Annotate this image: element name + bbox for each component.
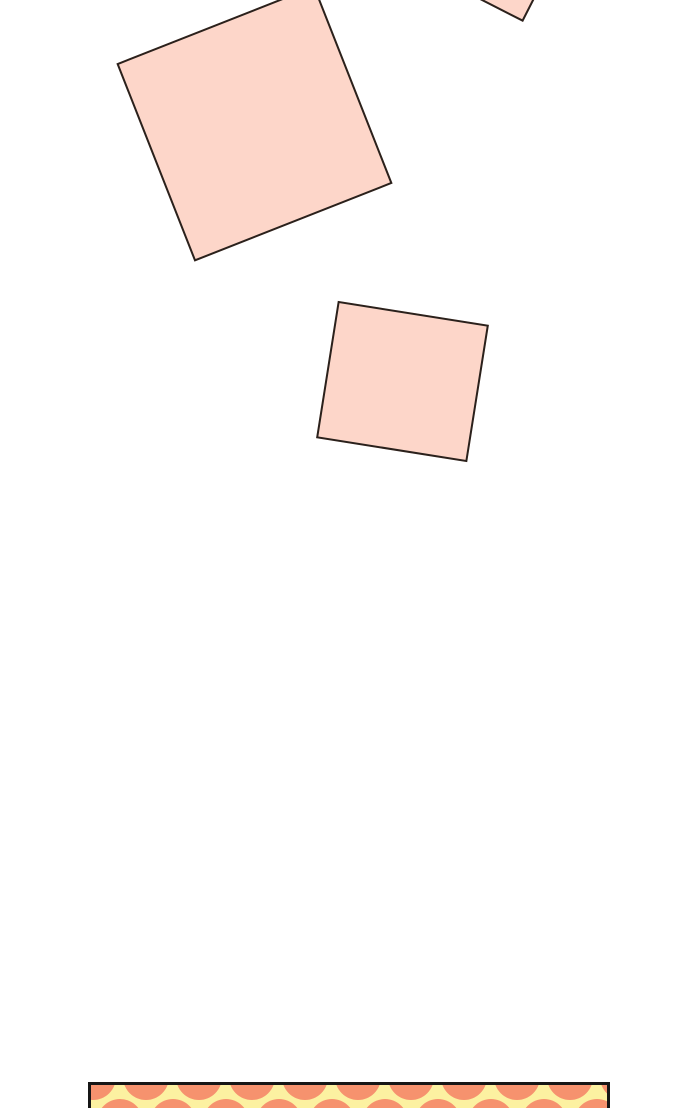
polka-dot	[574, 1099, 611, 1108]
polka-dot	[88, 1082, 116, 1100]
polka-dot	[362, 1099, 408, 1108]
polka-dot	[123, 1082, 169, 1100]
comic-page	[0, 0, 700, 1108]
polka-dot	[97, 1099, 143, 1108]
polka-dot	[309, 1099, 355, 1108]
polka-dot	[282, 1082, 328, 1100]
polka-dot	[256, 1099, 302, 1108]
polka-dot	[176, 1082, 222, 1100]
polka-dot-panel	[88, 1082, 610, 1108]
polka-dot	[494, 1082, 540, 1100]
polka-dot	[441, 1082, 487, 1100]
polka-dot	[150, 1099, 196, 1108]
polka-dot	[468, 1099, 514, 1108]
sticky-note-medium	[316, 301, 489, 462]
polka-dot	[415, 1099, 461, 1108]
polka-dot	[600, 1082, 610, 1100]
sticky-note-large	[116, 0, 392, 262]
polka-dot	[229, 1082, 275, 1100]
polka-dot	[388, 1082, 434, 1100]
polka-dot	[335, 1082, 381, 1100]
polka-dot	[547, 1082, 593, 1100]
polka-dot	[521, 1099, 567, 1108]
sticky-note-corner	[425, 0, 573, 22]
polka-dot	[203, 1099, 249, 1108]
